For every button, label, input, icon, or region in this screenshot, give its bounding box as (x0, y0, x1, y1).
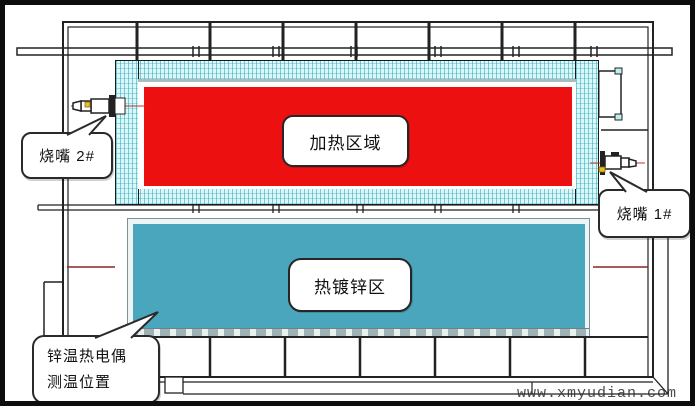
galvanizing-zone-label-text: 热镀锌区 (314, 273, 386, 298)
zinc-pot-bottom-band (128, 328, 589, 336)
burner-1-label: 烧嘴 1# (617, 203, 673, 224)
thermocouple-label-line2: 测温位置 (47, 370, 111, 396)
callout-burner-2: 烧嘴 2# (21, 132, 113, 179)
left-step (44, 282, 63, 337)
callout-thermocouple: 锌温热电偶 测温位置 (32, 335, 160, 404)
heating-zone-label-text: 加热区域 (310, 129, 382, 154)
diagram-canvas: 加热区域 热镀锌区 烧嘴 2# 烧嘴 1# 锌温热电偶 测温位置 www.xmy… (0, 0, 695, 406)
flue-box (595, 68, 648, 130)
heating-zone-label: 加热区域 (282, 115, 409, 167)
furnace-wall-bottom-insulation (115, 188, 599, 205)
galvanizing-zone-label: 热镀锌区 (288, 258, 412, 312)
furnace-wall-top-insulation (115, 60, 599, 80)
furnace-wall-left-insulation (115, 60, 139, 205)
furnace-wall-right-insulation (575, 60, 599, 205)
watermark-text: www.xmyudian.com (477, 385, 677, 402)
thermocouple-label-line1: 锌温热电偶 (47, 344, 127, 370)
callout-burner-1: 烧嘴 1# (598, 189, 691, 238)
burner-2-label: 烧嘴 2# (39, 145, 95, 166)
